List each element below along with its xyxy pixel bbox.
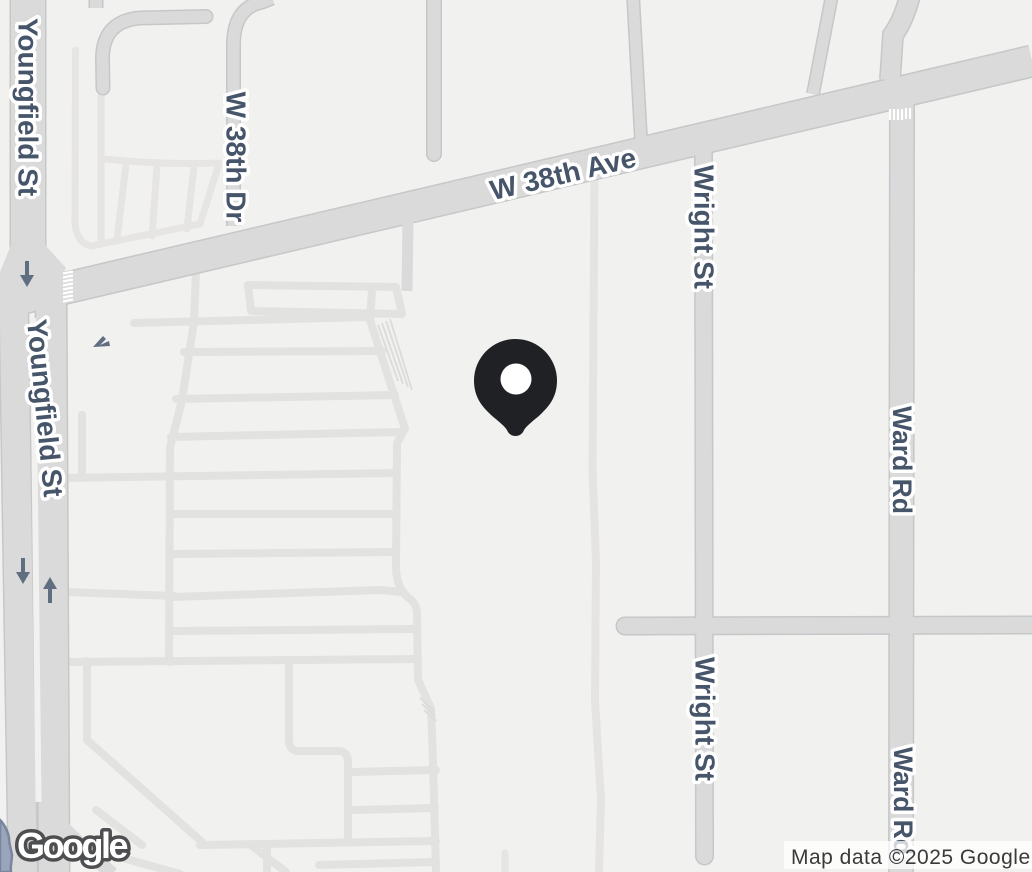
- svg-text:Ward Rd: Ward Rd: [888, 747, 918, 855]
- svg-text:W 38th Dr: W 38th Dr: [221, 92, 252, 223]
- svg-text:Wright St: Wright St: [690, 657, 721, 781]
- svg-text:Google: Google: [17, 825, 127, 866]
- svg-text:Youngfield St: Youngfield St: [13, 18, 44, 196]
- svg-text:Wright St: Wright St: [689, 165, 720, 289]
- svg-text:Map data ©2025 Google: Map data ©2025 Google: [791, 846, 1031, 869]
- svg-text:Ward Rd: Ward Rd: [887, 406, 917, 514]
